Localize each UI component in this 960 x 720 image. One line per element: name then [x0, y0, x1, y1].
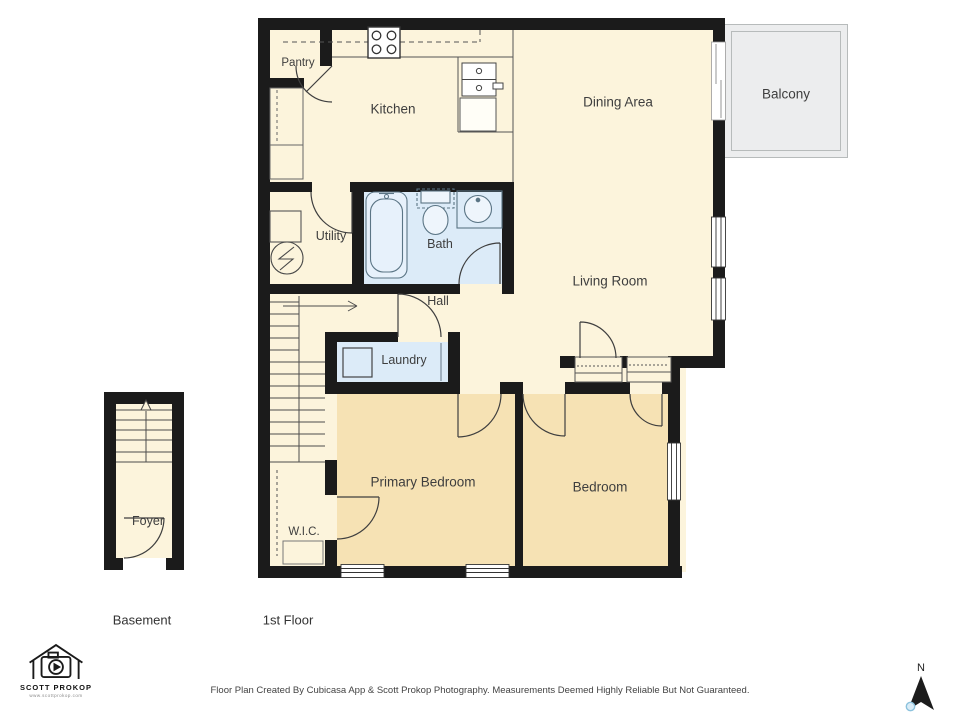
room-label-utility: Utility: [316, 229, 347, 243]
room-label-kitchen: Kitchen: [370, 102, 415, 117]
basement-floor: [116, 404, 172, 558]
wall: [662, 382, 680, 394]
floor-label-1st-floor: 1st Floor: [263, 613, 314, 628]
wall: [258, 284, 364, 294]
room-label-bath: Bath: [427, 237, 453, 251]
room-label-living-room: Living Room: [572, 274, 647, 289]
wall: [325, 460, 337, 495]
wall: [560, 356, 575, 368]
room-label-pantry: Pantry: [281, 57, 314, 69]
wall: [320, 18, 332, 66]
north-label: N: [913, 662, 929, 674]
scott-prokop-logo-icon: [24, 640, 88, 684]
wall: [325, 540, 337, 566]
room-label-foyer: Foyer: [132, 514, 164, 528]
wall: [258, 18, 270, 578]
room-label-primary-bedroom: Primary Bedroom: [370, 475, 475, 490]
wall: [713, 267, 725, 278]
floor-label-basement: Basement: [113, 613, 172, 628]
footer-disclaimer: Floor Plan Created By Cubicasa App & Sco…: [0, 685, 960, 696]
wall: [668, 500, 680, 578]
wall: [325, 332, 398, 342]
wall: [104, 392, 116, 570]
room-label-dining-area: Dining Area: [583, 95, 653, 110]
wall: [104, 558, 123, 570]
room-label-balcony: Balcony: [762, 87, 810, 102]
wall: [620, 356, 628, 368]
wall: [713, 18, 725, 44]
floor-plan-canvas: Pantry Kitchen Dining Area Balcony Utili…: [0, 0, 960, 720]
room-label-hall: Hall: [427, 294, 449, 308]
room-label-bedroom: Bedroom: [573, 480, 628, 495]
wall: [352, 182, 364, 294]
wall: [258, 78, 304, 88]
wall: [502, 182, 514, 294]
wall: [172, 392, 184, 570]
wall: [713, 118, 725, 217]
wall: [668, 356, 680, 443]
wall: [565, 382, 630, 394]
wall: [166, 558, 184, 570]
room-label-wic: W.I.C.: [288, 526, 319, 538]
wall: [350, 182, 514, 192]
wall: [258, 566, 682, 578]
room-label-laundry: Laundry: [381, 353, 426, 367]
wall: [325, 382, 455, 394]
wall: [104, 392, 184, 404]
wall: [364, 284, 460, 294]
wall: [515, 382, 523, 566]
wall: [258, 182, 312, 192]
